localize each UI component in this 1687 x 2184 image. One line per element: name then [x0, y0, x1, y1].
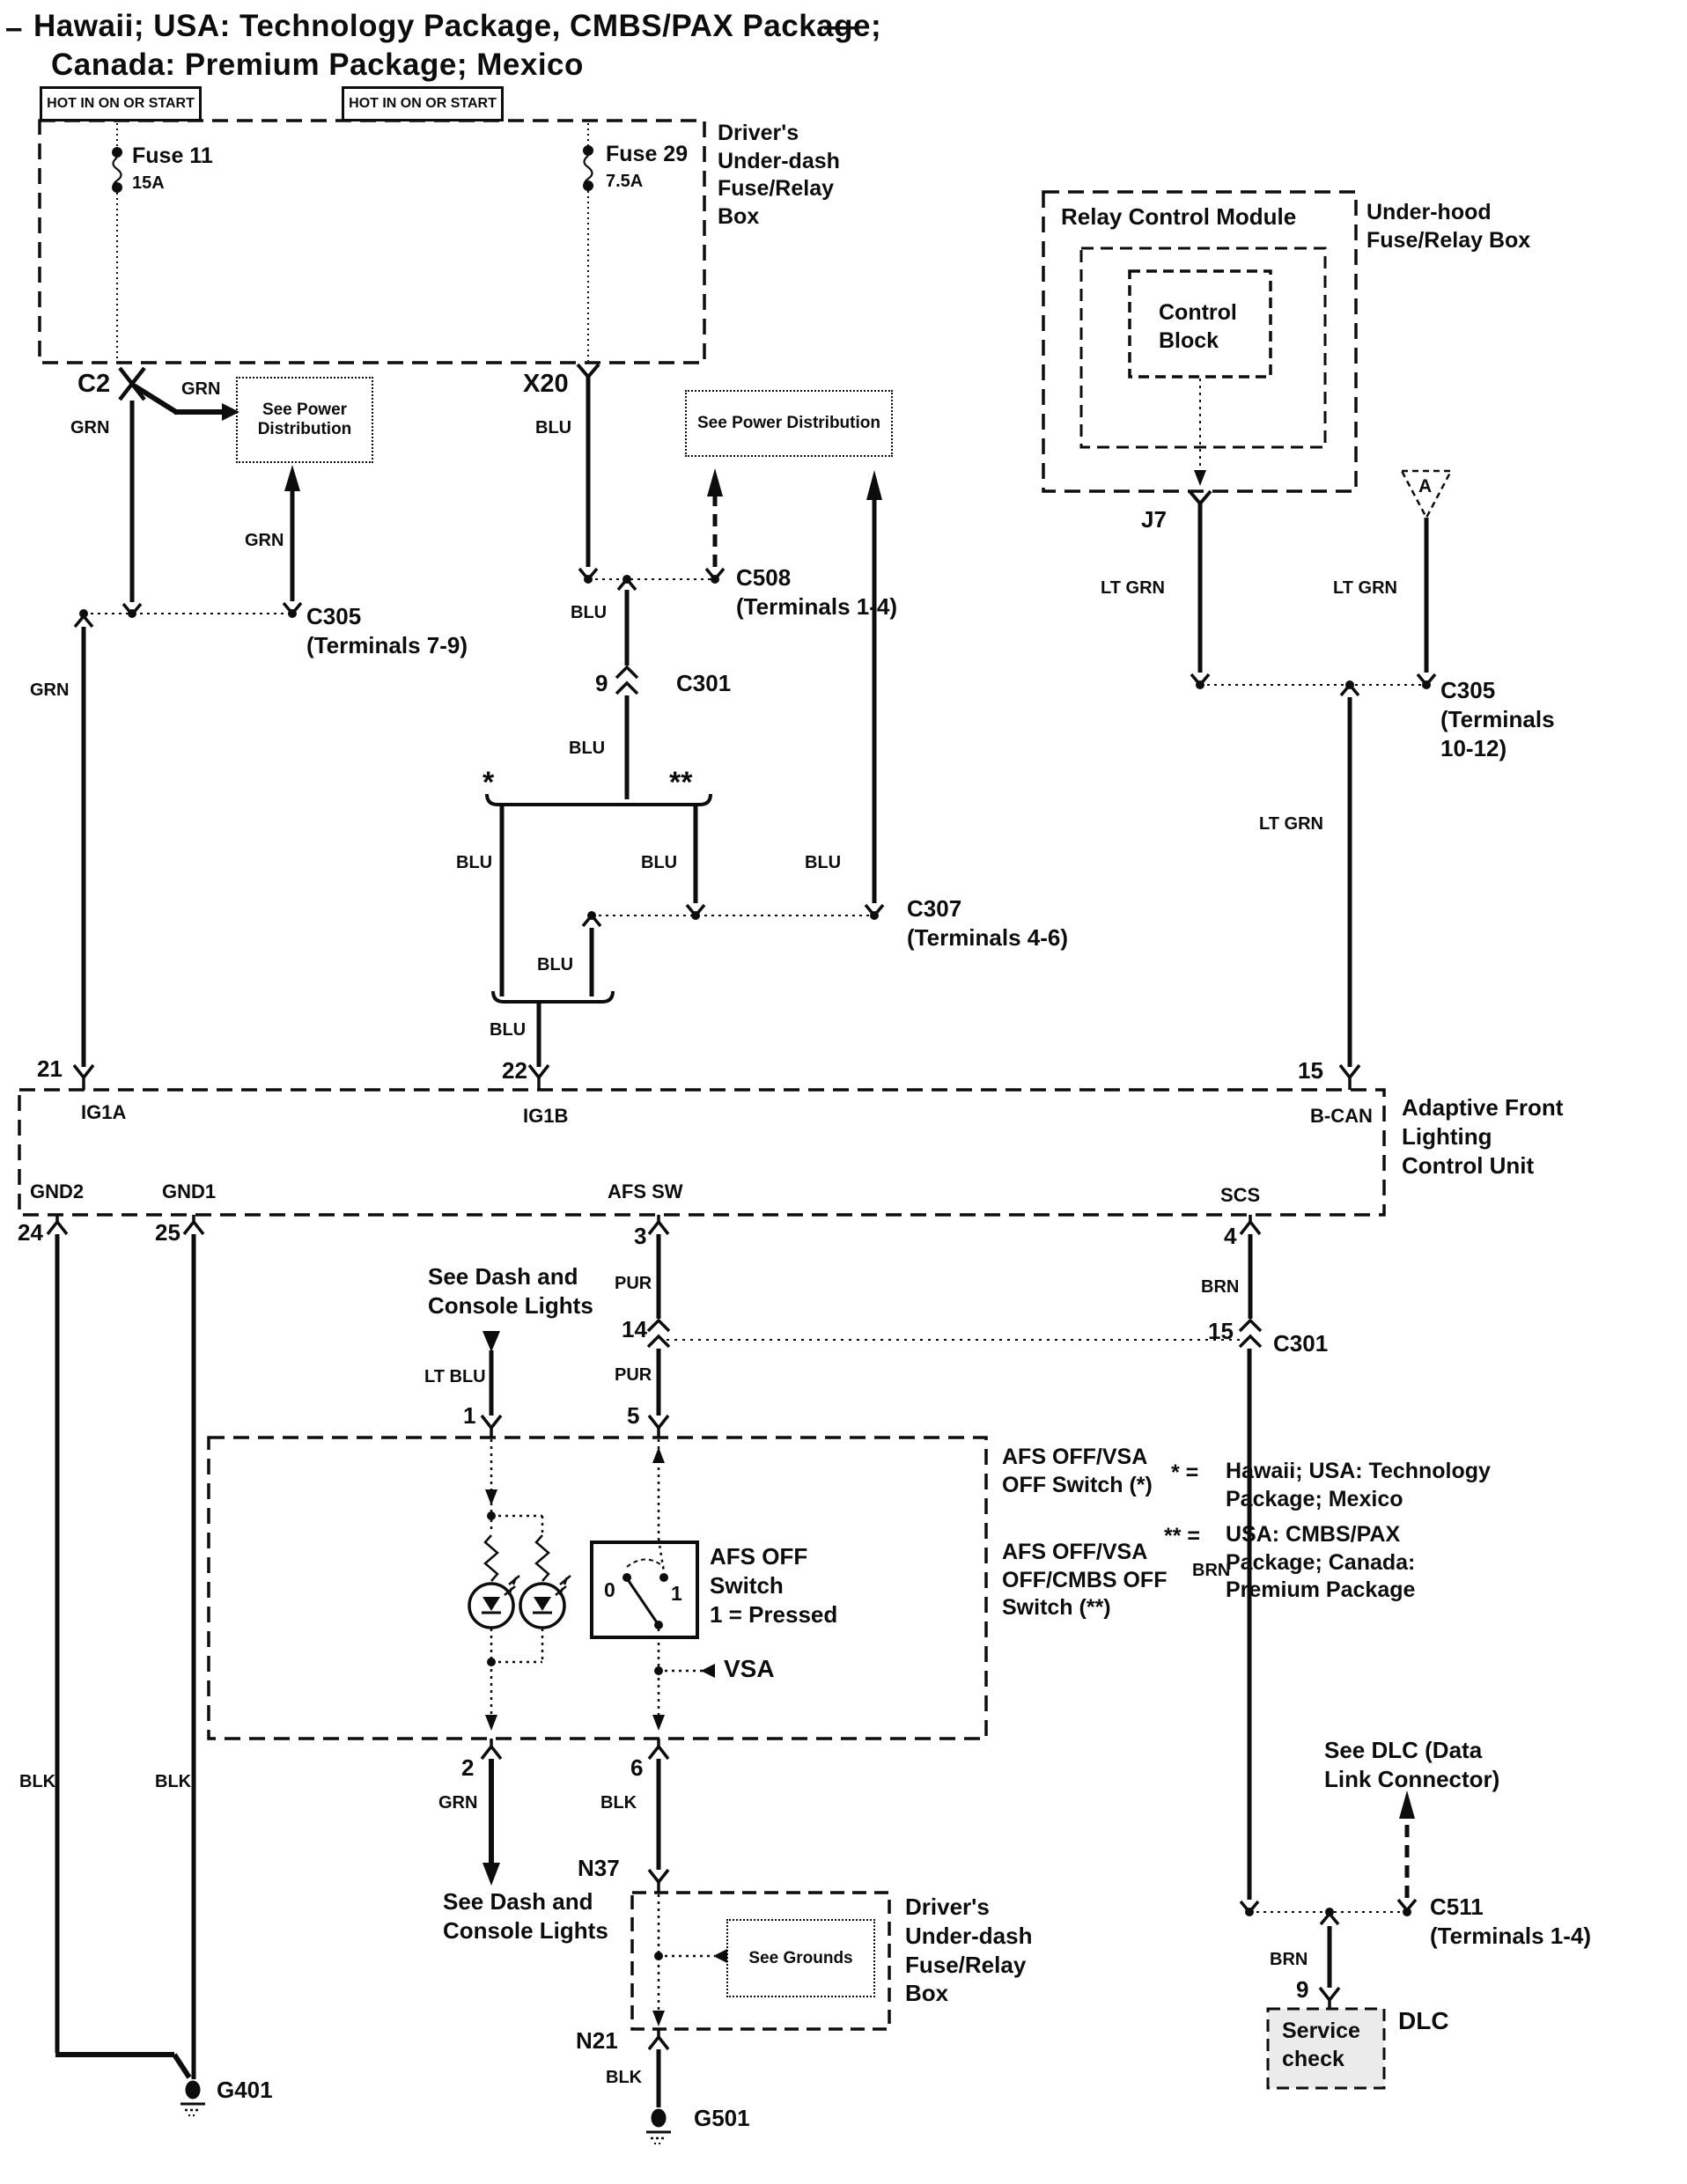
led-branch-node: [488, 1512, 496, 1520]
ground-node: [655, 1952, 663, 1960]
pin24-connector: [48, 1215, 67, 1234]
pin25-label: 25: [155, 1218, 180, 1247]
pin25-connector: [184, 1215, 203, 1234]
c511-label: C511 (Terminals 1-4): [1430, 1893, 1591, 1951]
resistor-right: [536, 1535, 549, 1581]
c301-connector-9: [616, 667, 637, 694]
n21-connector: [649, 2029, 668, 2049]
c301-a-label: C301: [676, 669, 731, 698]
fuse-29-label: Fuse 29: [606, 141, 688, 169]
pin21-label: 21: [37, 1055, 63, 1084]
switch-output: [659, 1629, 703, 1727]
pin4-label: 4: [1224, 1222, 1236, 1251]
legend-star: * =: [1171, 1460, 1198, 1488]
led-branch-node2: [488, 1658, 496, 1666]
legend-dblstar-text: USA: CMBS/PAX Package; Canada: Premium P…: [1226, 1521, 1415, 1605]
switch-position-1: 1: [671, 1581, 682, 1607]
page-title-line1: Hawaii; USA: Technology Package, CMBS/PA…: [33, 7, 881, 46]
pin6-connector: [649, 1739, 668, 1759]
fuse-11-rating: 15A: [132, 173, 165, 195]
afs-off-switch-contacts: [623, 1560, 668, 1629]
pin6-label: 6: [630, 1754, 643, 1783]
vsa-arrowhead: [701, 1664, 715, 1678]
c305-junction: [75, 610, 297, 628]
blu-low-label: BLU: [490, 1019, 526, 1041]
vsa-label: VSA: [724, 1653, 775, 1684]
c301-connector-15: [1240, 1320, 1261, 1347]
led-branch-arrow-down: [485, 1489, 497, 1505]
wiring-diagram-page: { "title": { "dash_left": "–", "line1": …: [0, 0, 1687, 2184]
n37-label: N37: [578, 1854, 620, 1883]
blk-gnd1-label: BLK: [155, 1771, 191, 1793]
star-marker: *: [483, 764, 494, 802]
grn-out-arrow: [483, 1759, 500, 1886]
diagram-linework: [0, 0, 1687, 2184]
n37-connector: [649, 1870, 668, 1893]
gnd1-label: GND1: [162, 1180, 216, 1204]
blu-mid-label: BLU: [537, 954, 573, 976]
ltblu-label: LT BLU: [424, 1366, 486, 1388]
a-connector-label: A: [1418, 475, 1432, 498]
see-power-distribution-1: See Power Distribution: [236, 377, 373, 463]
see-dash-bottom-label: See Dash and Console Lights: [443, 1887, 608, 1945]
title-dash-right: —: [824, 7, 856, 46]
see-grounds-box: See Grounds: [726, 1919, 875, 1997]
c307-label: C307 (Terminals 4-6): [907, 894, 1068, 952]
pin14-label: 14: [622, 1315, 647, 1344]
afs-off-switch-label: AFS OFF Switch 1 = Pressed: [710, 1542, 837, 1629]
led-branch: [491, 1439, 542, 1727]
c508-junction: [585, 569, 725, 590]
underhood-fusebox-label: Under-hood Fuse/Relay Box: [1367, 199, 1530, 254]
pin5-label: 5: [627, 1401, 639, 1430]
bcan-label: B-CAN: [1310, 1104, 1373, 1129]
blu-seg2-label: BLU: [569, 738, 605, 760]
pin22-connector: [529, 1065, 549, 1090]
underdash-fusebox-bottom-label: Driver's Under-dash Fuse/Relay Box: [905, 1893, 1032, 2008]
c2-connector-icon: [120, 368, 144, 400]
switch-position-0: 0: [604, 1577, 615, 1603]
fuse-11-label: Fuse 11: [132, 143, 213, 171]
switch-note-2: AFS OFF/VSA OFF/CMBS OFF Switch (**): [1002, 1539, 1167, 1622]
pin9-dlc-label: 9: [1296, 1975, 1308, 2004]
ig1b-label: IG1B: [523, 1104, 568, 1129]
switch-feed-arrow-up: [652, 1447, 665, 1463]
blk-pin6-label: BLK: [600, 1792, 637, 1814]
blk-n21-label: BLK: [606, 2067, 642, 2089]
control-block-drop: [1194, 379, 1206, 486]
x20-connector-icon: [578, 364, 599, 377]
legend-star-text: Hawaii; USA: Technology Package; Mexico: [1226, 1458, 1491, 1513]
pin3-connector: [649, 1215, 668, 1234]
brn1-label: BRN: [1201, 1276, 1239, 1298]
c301-connector-14: [648, 1320, 669, 1347]
c305-terminals-7-9-label: C305 (Terminals 7-9): [306, 602, 468, 660]
grn-left-label: GRN: [30, 680, 69, 702]
dlc-label: DLC: [1398, 2005, 1449, 2036]
resistor-left: [485, 1535, 497, 1581]
pur1-label: PUR: [615, 1273, 652, 1295]
grn-branch-label: GRN: [181, 379, 220, 401]
brn-dlc-label: BRN: [1270, 1949, 1308, 1971]
see-power-distribution-2: See Power Distribution: [685, 390, 893, 457]
c301-b-label: C301: [1273, 1329, 1328, 1358]
grn-up-label: GRN: [245, 530, 284, 552]
blu-seg1-label: BLU: [571, 602, 607, 624]
pin4-connector: [1241, 1215, 1260, 1234]
g401-label: G401: [217, 2076, 273, 2105]
switch-note-1: AFS OFF/VSA OFF Switch (*): [1002, 1444, 1153, 1499]
c305-10-12-junction: [1197, 681, 1431, 696]
see-dlc-arrow: [1399, 1791, 1415, 1898]
c2-label: C2: [77, 368, 110, 401]
control-unit-outline: [19, 1090, 1384, 1215]
g501-ground-symbol: [646, 2109, 671, 2144]
ground-path-internal: [659, 1894, 715, 2023]
led-right-icon: [520, 1576, 571, 1628]
blu-up-arrow: [866, 470, 883, 916]
double-star-marker: **: [669, 764, 692, 802]
fuse-11-symbol: [113, 123, 122, 361]
pin22-label: 22: [502, 1056, 527, 1085]
brn-long-label: BRN: [1192, 1560, 1230, 1582]
blu-branch-right-label: BLU: [641, 852, 677, 874]
led-left-icon: [469, 1576, 519, 1628]
pin2-connector: [482, 1739, 501, 1759]
underdash-fusebox-top-label: Driver's Under-dash Fuse/Relay Box: [718, 120, 840, 231]
afs-sw-label: AFS SW: [608, 1180, 683, 1204]
grn-pin2-label: GRN: [438, 1792, 477, 1814]
c508-label: C508 (Terminals 1-4): [736, 563, 897, 621]
ig1a-label: IG1A: [81, 1100, 126, 1125]
pin15-connector: [1340, 1065, 1359, 1090]
switch-assembly-outline: [209, 1438, 986, 1739]
merge-bracket-lower: [493, 991, 613, 1002]
pin9-dlc-connector: [1320, 1988, 1339, 2009]
pin15-mid-label: 15: [1208, 1317, 1234, 1346]
j7-label: J7: [1141, 505, 1167, 534]
ltgrn-a-label: LT GRN: [1333, 577, 1397, 599]
fuse-29-rating: 7.5A: [606, 171, 643, 193]
service-check-label: Service check: [1282, 2018, 1360, 2073]
blu-branch-left-label: BLU: [456, 852, 492, 874]
pin9-c301-label: 9: [595, 669, 608, 698]
see-dlc-label: See DLC (Data Link Connector): [1324, 1736, 1499, 1794]
hot-in-on-or-start-1: HOT IN ON OR START: [40, 86, 202, 121]
x20-label: X20: [523, 368, 569, 401]
blu-x20-label: BLU: [535, 417, 571, 439]
led-branch-exit-arrow: [485, 1715, 497, 1731]
blu-branch-up-label: BLU: [805, 852, 841, 874]
fuse-29-symbol: [584, 123, 593, 361]
see-dash-top-label: See Dash and Console Lights: [428, 1262, 593, 1320]
pin1-connector: [482, 1416, 501, 1438]
hot-in-on-or-start-2: HOT IN ON OR START: [342, 86, 504, 121]
g501-label: G501: [694, 2104, 750, 2133]
pin15-top-label: 15: [1298, 1056, 1323, 1085]
c307-junction: [583, 912, 879, 927]
relay-control-module-label: Relay Control Module: [1061, 202, 1296, 232]
page-title-line2: Canada: Premium Package; Mexico: [51, 46, 584, 85]
pin21-connector: [74, 1065, 93, 1090]
legend-dblstar: ** =: [1164, 1523, 1200, 1551]
j7-connector: [1190, 491, 1211, 504]
c511-junction: [1246, 1900, 1417, 1924]
c305-terminals-10-12-label: C305 (Terminals 10-12): [1440, 676, 1555, 762]
ground-exit-arrow: [652, 2011, 665, 2026]
pin24-label: 24: [18, 1218, 43, 1247]
control-unit-name: Adaptive Front Lighting Control Unit: [1402, 1093, 1563, 1180]
ltgrn-j7-label: LT GRN: [1101, 577, 1165, 599]
gnd2-label: GND2: [30, 1180, 84, 1204]
g401-ground-symbol: [180, 2081, 205, 2115]
pin3-label: 3: [634, 1222, 646, 1251]
n21-label: N21: [576, 2026, 618, 2055]
title-dash-left: –: [5, 9, 23, 48]
control-block-label: Control Block: [1159, 299, 1237, 355]
ltgrn-bcan-label: LT GRN: [1259, 813, 1323, 835]
scs-label: SCS: [1220, 1183, 1260, 1208]
blk-gnd2-label: BLK: [19, 1771, 55, 1793]
pur2-label: PUR: [615, 1364, 652, 1386]
grn-up-arrow: [284, 465, 301, 614]
c508-arrow: [707, 468, 723, 567]
grn-c2-label: GRN: [70, 417, 109, 439]
wire-blk-gnd2: [55, 1234, 189, 2077]
pin2-label: 2: [461, 1754, 474, 1783]
pin5-connector: [649, 1416, 668, 1438]
switch-exit-arrow: [652, 1715, 665, 1731]
vsa-node: [655, 1667, 663, 1675]
see-grounds-arrowhead: [713, 1949, 727, 1963]
pin1-label: 1: [463, 1401, 475, 1430]
